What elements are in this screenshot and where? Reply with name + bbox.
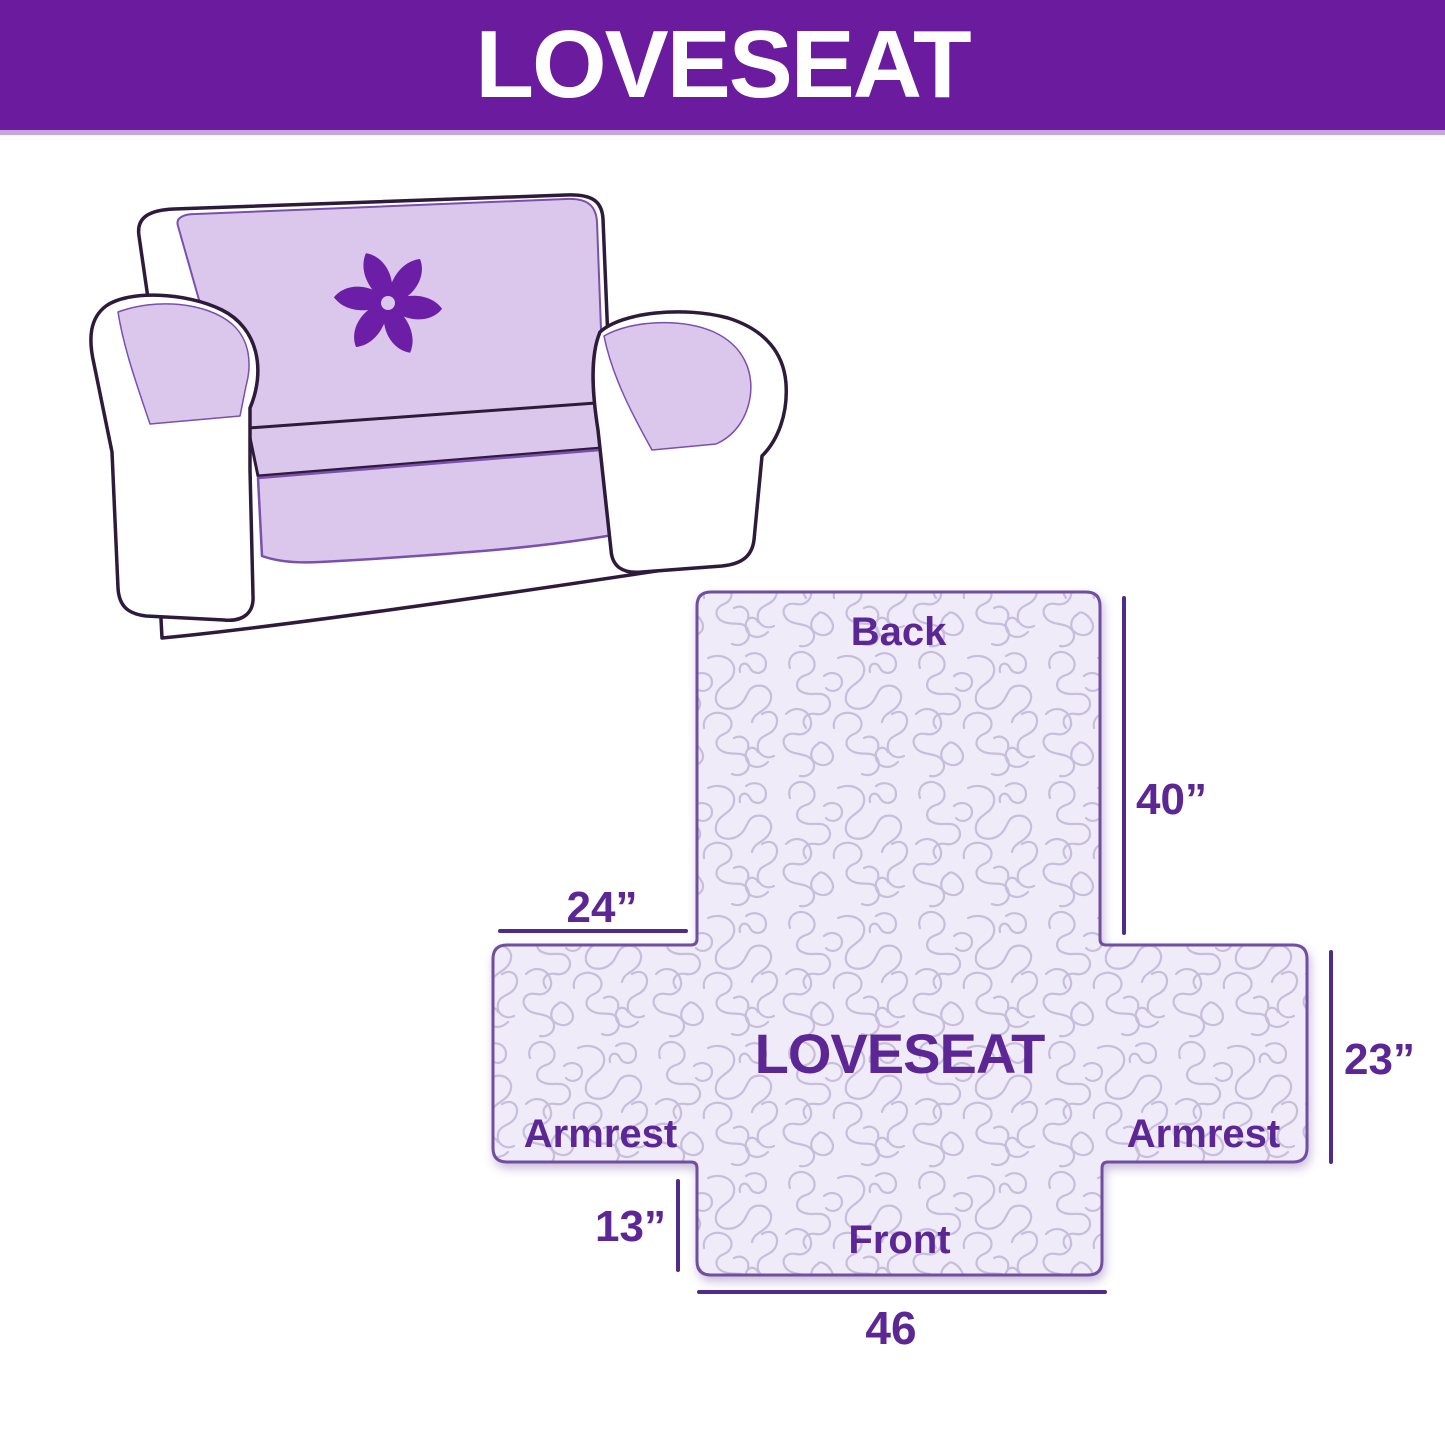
- armrest-left-label: Armrest: [493, 1114, 708, 1154]
- cover-outline-shape: [493, 592, 1307, 1275]
- dim-front-width: 46: [688, 1305, 1094, 1351]
- page-title: LOVESEAT: [475, 17, 969, 113]
- armrest-right-label: Armrest: [1096, 1114, 1311, 1154]
- loveseat-infographic: LOVESEAT: [0, 0, 1445, 1445]
- dim-armrest-side-height: 23”: [1344, 1038, 1415, 1082]
- back-panel-label: Back: [697, 612, 1100, 652]
- dim-front-drop: 13”: [540, 1205, 666, 1249]
- dim-back-height: 40”: [1136, 778, 1207, 822]
- cover-center-title: LOVESEAT: [697, 1026, 1102, 1082]
- dim-armrest-top-width: 24”: [502, 886, 702, 930]
- header-banner: LOVESEAT: [0, 0, 1445, 135]
- front-panel-label: Front: [697, 1220, 1102, 1260]
